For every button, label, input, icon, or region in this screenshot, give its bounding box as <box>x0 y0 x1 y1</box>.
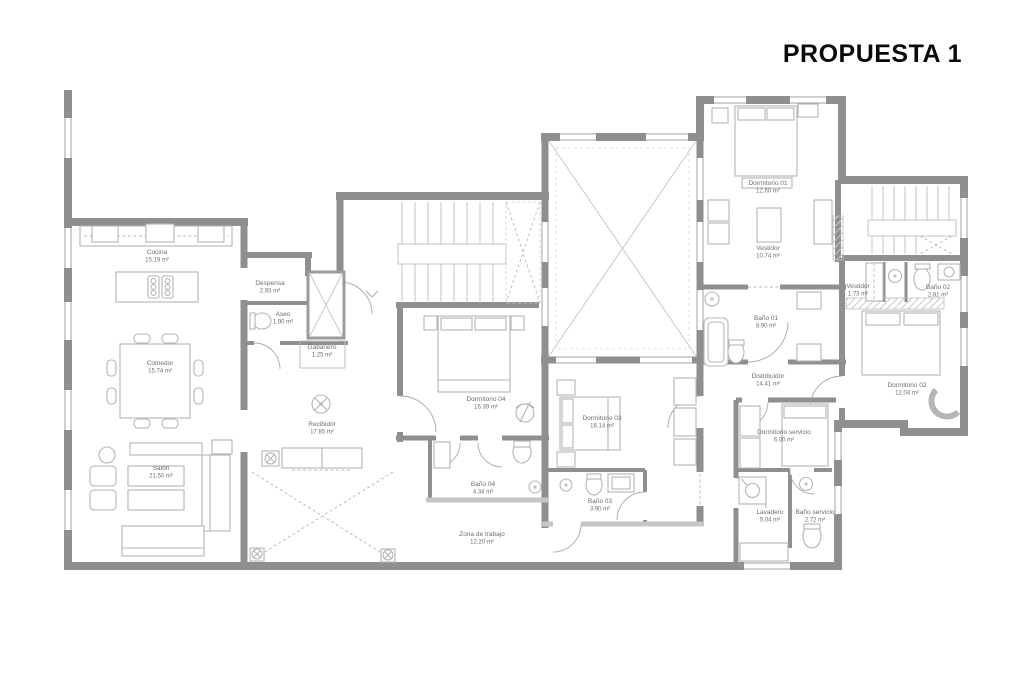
stairs-secondary <box>868 186 956 254</box>
wardrobe <box>866 263 883 301</box>
shower-icon <box>889 270 902 283</box>
sofa <box>202 455 230 531</box>
shower-icon <box>529 481 541 493</box>
bed <box>735 106 797 176</box>
room-name: Comedor <box>147 360 175 367</box>
room-label: Gabanero1.25 m² <box>308 344 337 359</box>
room-area: 1.73 m² <box>848 292 868 298</box>
terrace <box>250 472 395 562</box>
room-name: Dormitorio 03 <box>582 415 621 422</box>
armchair <box>90 490 116 510</box>
room-area: 5.04 m² <box>760 518 780 524</box>
bedroom-01-furniture <box>708 104 832 244</box>
room-label: Despensa2.93 m² <box>255 280 285 295</box>
nightstand <box>557 380 575 395</box>
cabinet <box>212 440 232 454</box>
room-area: 12.20 m² <box>470 540 494 546</box>
wardrobe <box>674 378 696 405</box>
room-area: 17.85 m² <box>310 430 334 436</box>
service-rooms-furniture <box>739 404 828 561</box>
room-name: Recibidor <box>308 421 336 428</box>
wardrobe <box>740 438 760 468</box>
bathroom-03-fixtures <box>560 474 634 495</box>
room-label: Baño 044.34 m² <box>471 481 496 496</box>
elevator-shaft <box>308 272 344 338</box>
room-name: Lavadero <box>756 509 783 516</box>
wardrobe <box>674 408 696 436</box>
room-area: 12.04 m² <box>895 391 919 397</box>
room-name: Vestidor <box>846 283 870 290</box>
wardrobe <box>814 200 832 244</box>
room-name: Baño 04 <box>471 481 496 488</box>
room-name: Baño 03 <box>588 498 613 505</box>
room-area: 4.34 m² <box>473 490 493 496</box>
armchair <box>931 390 958 417</box>
sink-icon <box>797 292 821 309</box>
washer-icon <box>739 477 766 504</box>
room-name: Despensa <box>255 280 285 287</box>
door-arc <box>478 443 502 467</box>
bed <box>438 316 510 392</box>
desk-chair <box>516 402 534 422</box>
nightstand <box>424 316 437 330</box>
wardrobe <box>708 200 729 221</box>
closet-wall <box>846 298 944 309</box>
bedroom-03-furniture <box>557 378 696 467</box>
entry-chevron-icon <box>366 291 378 297</box>
room-name: Gabanero <box>308 344 337 351</box>
counter <box>740 543 788 561</box>
cabinet <box>198 226 224 242</box>
wardrobe <box>674 439 696 465</box>
sink-icon <box>797 344 821 361</box>
shower-icon <box>705 292 719 306</box>
room-area: 3.90 m² <box>590 507 610 513</box>
room-area: 1.25 m² <box>312 353 332 359</box>
room-area: 8.90 m² <box>756 324 776 330</box>
coffee-table <box>128 490 184 510</box>
room-area: 15.74 m² <box>148 369 172 375</box>
room-name: Vestidor <box>756 245 780 252</box>
armchair <box>90 466 116 486</box>
room-name: Dormitorio 01 <box>748 180 787 187</box>
room-area: 2.93 m² <box>260 289 280 295</box>
room-name: Dormitorio 04 <box>466 396 505 403</box>
shower-icon <box>800 478 813 491</box>
hatched-wall <box>833 216 843 260</box>
living-room-furniture <box>90 440 232 556</box>
room-label: Zona de trabajo12.20 m² <box>459 531 505 546</box>
bed <box>862 311 940 375</box>
room-label: Lavadero5.04 m² <box>756 509 783 524</box>
dining-table <box>107 334 203 428</box>
sink-icon <box>434 442 450 468</box>
kitchen-island <box>116 272 198 302</box>
room-label: Baño 018.90 m² <box>754 315 779 330</box>
room-area: 21.50 m² <box>149 474 173 480</box>
ceiling-light-icon <box>312 395 330 413</box>
cabinet <box>92 226 118 242</box>
room-name: Zona de trabajo <box>459 531 505 538</box>
floor-plan-sheet: PROPUESTA 1 <box>0 0 1024 676</box>
tv-bench <box>130 443 202 455</box>
nightstand <box>557 452 575 467</box>
toilet-icon <box>253 313 271 329</box>
bedroom-02-furniture <box>862 311 958 417</box>
room-name: Baño 02 <box>926 284 951 291</box>
room-area: 1.90 m² <box>273 320 293 326</box>
floor-plan: Cocina15.19 m²Despensa2.93 m²Aseo1.90 m²… <box>0 0 1024 676</box>
side-table <box>99 447 115 463</box>
room-label: Dormitorio 0416.39 m² <box>466 396 505 411</box>
room-label: Recibidor17.85 m² <box>308 421 336 436</box>
room-label: Baño 033.90 m² <box>588 498 613 513</box>
sofa <box>122 526 204 556</box>
room-area: 14.41 m² <box>756 382 780 388</box>
room-name: Baño servicio <box>795 509 834 516</box>
room-label: Baño 022.81 m² <box>926 284 951 299</box>
nightstand <box>712 108 728 123</box>
room-name: Dormitorio servicio <box>757 429 811 436</box>
room-name: Baño 01 <box>754 315 779 322</box>
room-name: Cocina <box>147 249 168 256</box>
room-label: Vestidor10.74 m² <box>756 245 780 260</box>
room-area: 12.60 m² <box>756 189 780 195</box>
oven <box>146 224 174 242</box>
vestidor-island <box>757 208 781 242</box>
nightstand <box>511 316 524 330</box>
room-name: Dormitorio 02 <box>887 382 926 389</box>
wardrobe <box>708 223 729 244</box>
room-area: 2.72 m² <box>805 518 825 524</box>
shower-icon <box>560 479 572 491</box>
stairs-main <box>398 202 540 303</box>
room-area: 2.81 m² <box>928 293 948 299</box>
room-area: 16.14 m² <box>590 424 614 430</box>
room-area: 15.19 m² <box>145 258 169 264</box>
sink-icon <box>938 264 960 280</box>
room-label: Baño servicio2.72 m² <box>795 509 834 524</box>
nightstand <box>798 104 818 117</box>
room-name: Aseo <box>276 311 291 318</box>
room-area: 10.74 m² <box>756 254 780 260</box>
room-label: Dormitorio 0212.04 m² <box>887 382 926 397</box>
room-name: Distribuidor <box>752 373 786 380</box>
aseo-fixtures <box>250 313 271 329</box>
room-label: Cocina15.19 m² <box>145 249 169 264</box>
room-label: Distribuidor14.41 m² <box>752 373 786 388</box>
room-area: 16.39 m² <box>474 405 498 411</box>
room-name: Salón <box>153 465 170 472</box>
courtyard <box>549 141 696 356</box>
room-label: Aseo1.90 m² <box>273 311 293 326</box>
room-area: 6.00 m² <box>774 438 794 444</box>
